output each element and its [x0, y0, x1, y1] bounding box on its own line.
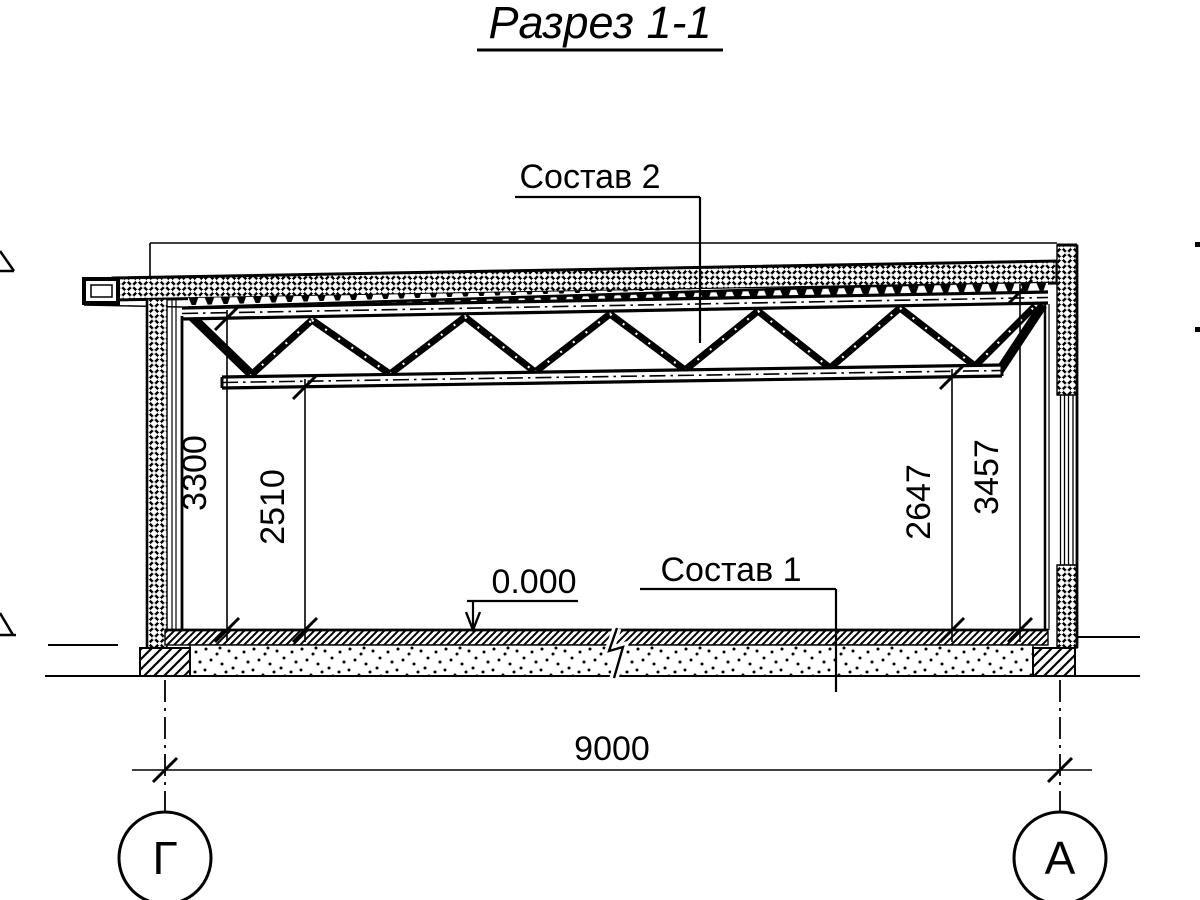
axis-label-left: Г [153, 832, 178, 884]
edge-mark-right-top [1195, 242, 1200, 247]
edge-mark-right-bottom [1195, 327, 1200, 332]
right-sill-wall [1057, 565, 1077, 648]
roof-assembly-label: Состав 2 [520, 158, 661, 196]
floor-assembly-label: Состав 1 [661, 551, 802, 589]
zero-elevation-label: 0.000 [491, 563, 576, 601]
foundation-right [1033, 648, 1075, 676]
floor [45, 628, 1140, 678]
dim-text-9000: 9000 [574, 730, 650, 768]
foundation-left [140, 648, 190, 676]
section-drawing: Разрез 1-1 [0, 0, 1200, 900]
page-title: Разрез 1-1 [489, 0, 712, 48]
dim-text-2647: 2647 [900, 464, 938, 540]
dim-text-3300: 3300 [176, 435, 214, 511]
axis-label-right: А [1045, 832, 1076, 884]
right-parapet [1057, 245, 1077, 395]
dim-text-3457: 3457 [968, 439, 1006, 515]
dim-text-2510: 2510 [254, 469, 292, 545]
